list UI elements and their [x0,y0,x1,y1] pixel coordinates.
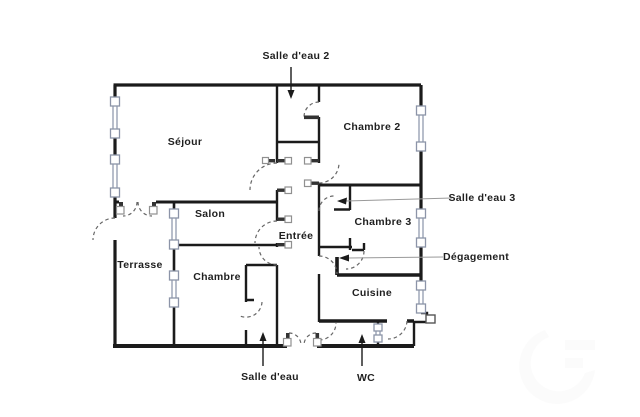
door-arc [319,256,337,274]
watermark [519,330,595,404]
label-salle-deau: Salle d'eau [241,371,299,383]
window-icon [417,281,426,313]
label-salon: Salon [195,208,225,220]
window-icon [374,324,382,342]
floor-plan: Salle d'eau 2 Séjour Chambre 2 Salon Sal… [0,0,640,417]
window-icon [170,209,179,249]
service-stoop [426,315,435,323]
window-icon [170,271,179,307]
door-arc [304,102,319,117]
door-arc [93,218,115,240]
door-arc [255,221,277,243]
door-arc [123,202,152,216]
door-jamb [304,116,319,120]
label-chambre: Chambre [193,271,241,283]
label-wc: WC [357,372,375,384]
label-chambre-2: Chambre 2 [344,121,401,133]
door-arc [250,163,277,190]
label-salle-deau-2: Salle d'eau 2 [262,50,329,62]
door-arc [289,333,316,345]
door-arc [388,321,407,339]
floor-plan-canvas: Salle d'eau 2 Séjour Chambre 2 Salon Sal… [0,0,640,417]
label-degagement: Dégagement [443,251,509,263]
label-cuisine: Cuisine [352,287,392,299]
door-arc [259,247,277,265]
label-entree: Entrée [279,230,313,242]
label-chambre-3: Chambre 3 [355,216,412,228]
window-icon [417,106,426,151]
salle-deau-3-pointer [346,198,452,201]
window-icon [417,209,426,247]
door-jambs [117,158,322,347]
door-arc [319,196,334,211]
label-sejour: Séjour [168,136,202,148]
door-arc [319,163,339,183]
degagement-pointer [348,257,443,258]
window-icon [111,155,120,197]
label-terrasse: Terrasse [117,259,162,271]
window-icon [111,97,120,138]
door-arc [240,302,262,317]
label-salle-deau-3: Salle d'eau 3 [448,192,515,204]
door-arc [319,323,336,340]
